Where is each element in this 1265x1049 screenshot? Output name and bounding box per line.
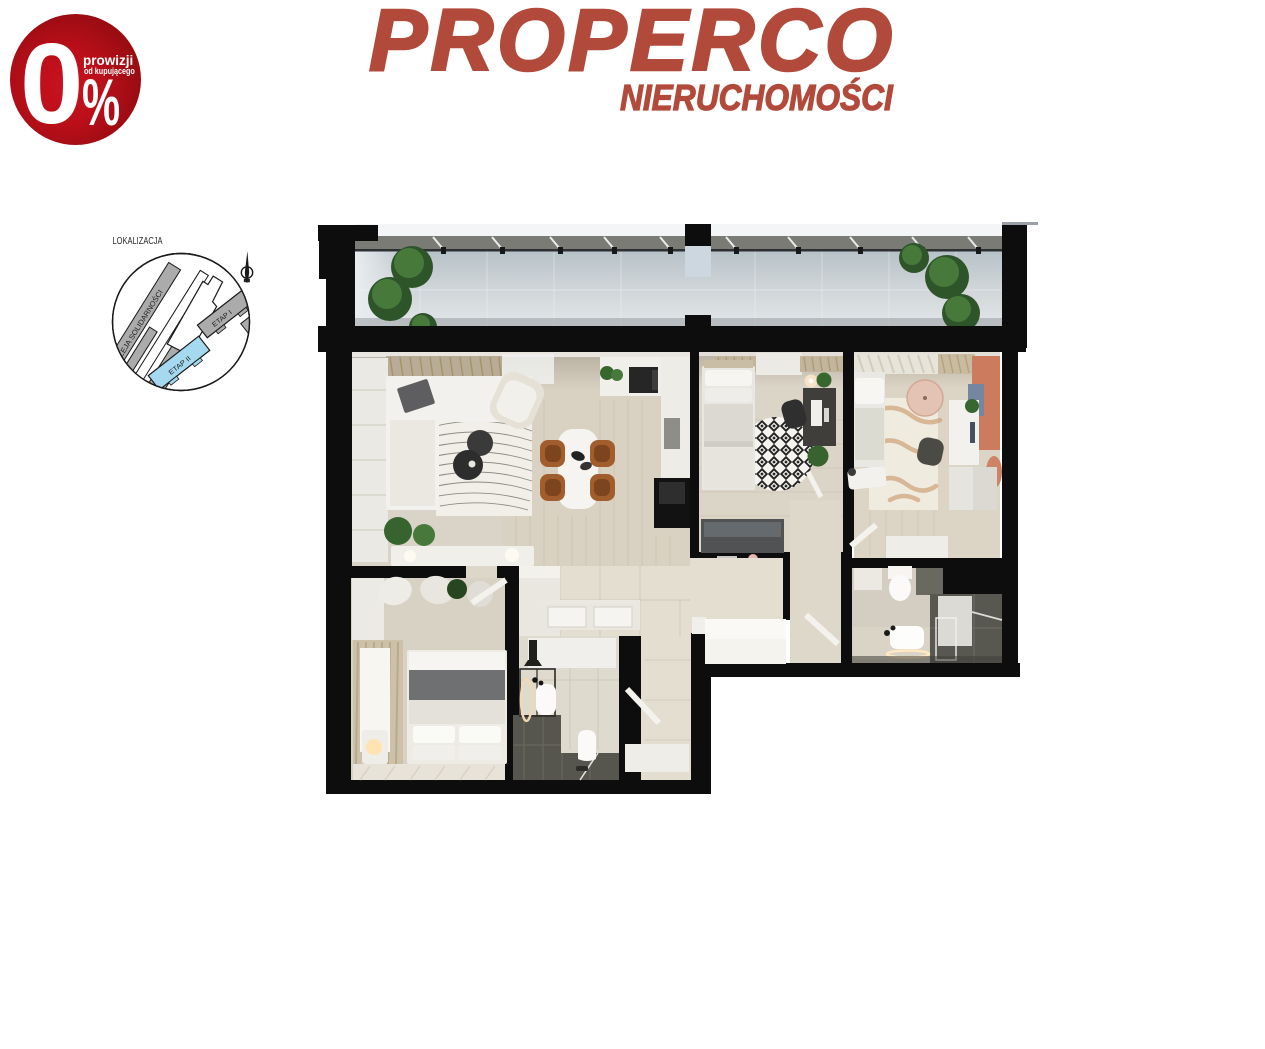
svg-text:LOKALIZACJA: LOKALIZACJA [113, 236, 163, 247]
